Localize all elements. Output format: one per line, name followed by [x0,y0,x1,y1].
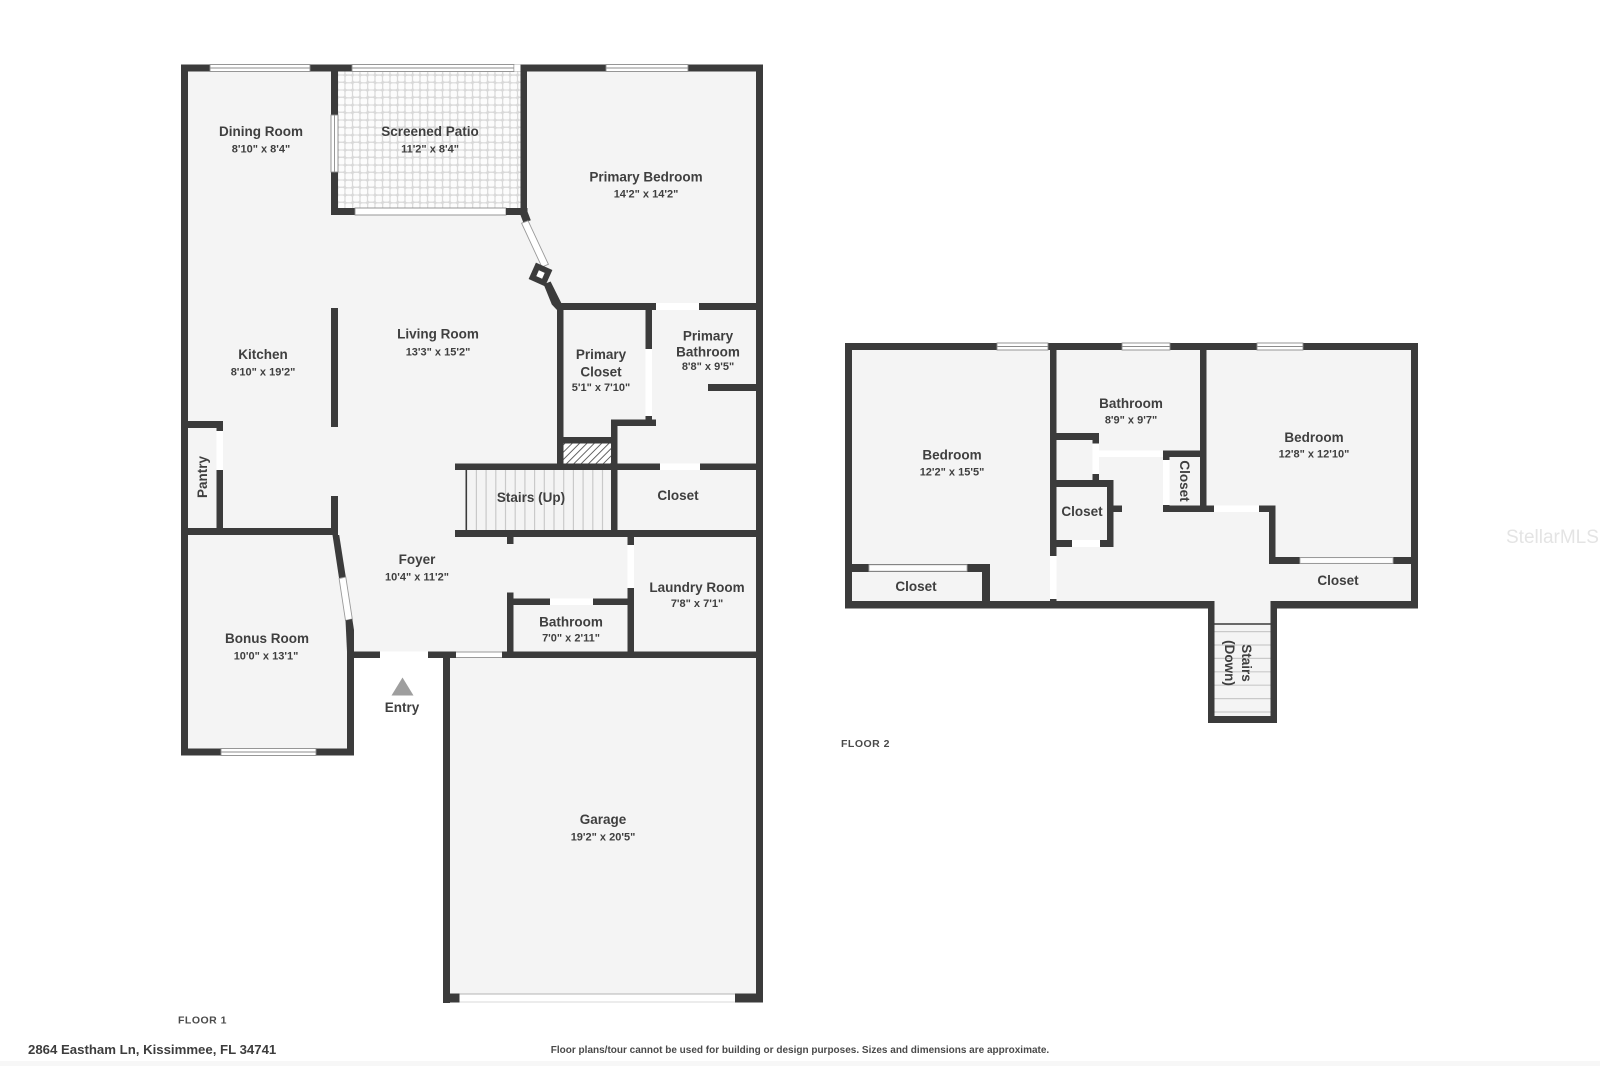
svg-text:7'8" x 7'1": 7'8" x 7'1" [671,598,723,610]
svg-text:Dining Room: Dining Room [219,124,303,139]
svg-text:Closet: Closet [1317,573,1359,588]
svg-text:(Down): (Down) [1222,640,1237,686]
svg-text:Bonus Room: Bonus Room [225,631,309,646]
svg-text:8'8" x 9'5": 8'8" x 9'5" [682,361,734,373]
svg-text:Foyer: Foyer [399,552,437,567]
svg-text:Entry: Entry [385,700,420,715]
svg-text:10'0" x 13'1": 10'0" x 13'1" [234,651,299,663]
svg-text:FLOOR 1: FLOOR 1 [178,1015,227,1027]
svg-text:13'3" x 15'2": 13'3" x 15'2" [406,347,471,359]
svg-text:Bathroom: Bathroom [1099,396,1163,411]
svg-text:19'2" x 20'5": 19'2" x 20'5" [571,832,636,844]
svg-text:7'0" x 2'11": 7'0" x 2'11" [542,633,600,645]
svg-text:Bedroom: Bedroom [922,448,981,463]
svg-text:Floor plans/tour cannot be use: Floor plans/tour cannot be used for buil… [551,1045,1050,1056]
svg-text:Primary: Primary [683,329,734,344]
svg-text:Closet: Closet [580,365,622,380]
svg-text:Primary Bedroom: Primary Bedroom [589,170,702,185]
svg-text:8'10" x 19'2": 8'10" x 19'2" [231,367,296,379]
svg-text:Bedroom: Bedroom [1284,430,1343,445]
svg-text:Closet: Closet [657,488,699,503]
svg-text:12'8" x 12'10": 12'8" x 12'10" [1279,449,1350,461]
svg-text:Garage: Garage [580,812,627,827]
svg-text:Closet: Closet [1177,460,1192,502]
svg-text:Stairs: Stairs [1239,644,1254,682]
svg-text:10'4" x 11'2": 10'4" x 11'2" [385,572,449,584]
svg-text:Closet: Closet [895,579,937,594]
svg-text:Bathroom: Bathroom [539,615,603,630]
svg-text:8'10" x 8'4": 8'10" x 8'4" [232,144,290,156]
svg-text:Living Room: Living Room [397,327,479,342]
svg-text:Pantry: Pantry [195,456,210,499]
svg-text:Kitchen: Kitchen [238,347,288,362]
svg-text:Screened Patio: Screened Patio [381,124,479,139]
svg-text:Closet: Closet [1061,504,1103,519]
svg-text:FLOOR 2: FLOOR 2 [841,738,890,750]
svg-text:12'2" x 15'5": 12'2" x 15'5" [920,467,985,479]
svg-text:Bathroom: Bathroom [676,345,740,360]
svg-text:Primary: Primary [576,347,627,362]
svg-text:14'2" x 14'2": 14'2" x 14'2" [614,189,679,201]
svg-text:StellarMLS: StellarMLS [1506,527,1599,548]
svg-text:5'1" x 7'10": 5'1" x 7'10" [572,382,630,394]
svg-text:8'9" x 9'7": 8'9" x 9'7" [1105,415,1157,427]
svg-text:Laundry Room: Laundry Room [649,580,744,595]
svg-text:2864 Eastham Ln, Kissimmee, FL: 2864 Eastham Ln, Kissimmee, FL 34741 [28,1042,276,1057]
svg-text:Stairs (Up): Stairs (Up) [497,490,565,505]
svg-text:11'2" x 8'4": 11'2" x 8'4" [401,144,459,156]
